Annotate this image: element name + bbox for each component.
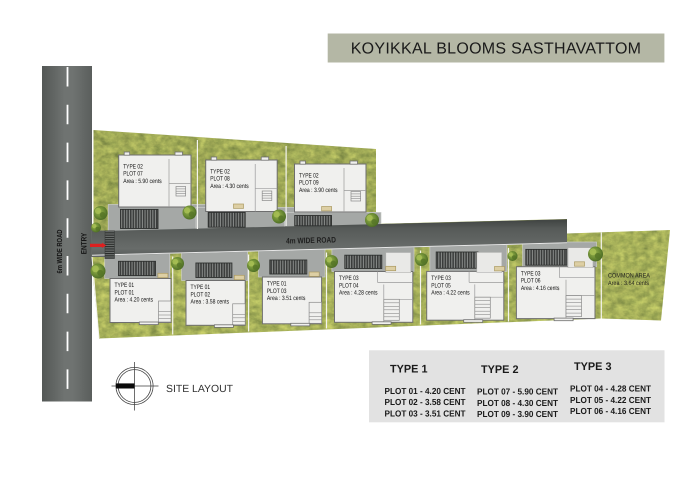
svg-text:Area : 3.51 cents: Area : 3.51 cents — [267, 295, 306, 302]
svg-text:PLOT 03: PLOT 03 — [267, 288, 287, 295]
svg-text:Area : 3.58 cents: Area : 3.58 cents — [191, 299, 230, 306]
svg-text:PLOT 08 - 4.30 CENT: PLOT 08 - 4.30 CENT — [477, 398, 559, 408]
svg-text:PLOT 06: PLOT 06 — [521, 278, 541, 285]
svg-text:TYPE 02: TYPE 02 — [123, 164, 143, 171]
svg-text:TYPE 1: TYPE 1 — [390, 364, 428, 376]
svg-text:PLOT 02 - 3.58 CENT: PLOT 02 - 3.58 CENT — [385, 397, 467, 407]
svg-text:PLOT 09 - 3.90 CENT: PLOT 09 - 3.90 CENT — [477, 409, 559, 419]
svg-text:PLOT 09: PLOT 09 — [299, 180, 319, 187]
svg-text:PLOT 05: PLOT 05 — [431, 282, 451, 289]
svg-text:TYPE 3: TYPE 3 — [574, 361, 612, 373]
svg-text:Area : 4.16 cents: Area : 4.16 cents — [521, 285, 560, 292]
svg-text:PLOT 01 - 4.20 CENT: PLOT 01 - 4.20 CENT — [385, 386, 467, 396]
svg-text:PLOT 01: PLOT 01 — [115, 289, 135, 296]
svg-text:PLOT 02: PLOT 02 — [191, 291, 211, 298]
svg-text:Area : 5.90 cents: Area : 5.90 cents — [123, 178, 162, 185]
svg-text:Area : 3.64 cents: Area : 3.64 cents — [608, 280, 649, 287]
svg-text:TYPE 01: TYPE 01 — [191, 284, 211, 291]
svg-text:Area : 4.28 cents: Area : 4.28 cents — [339, 290, 378, 297]
svg-text:TYPE 01: TYPE 01 — [267, 281, 287, 288]
svg-text:TYPE 02: TYPE 02 — [210, 169, 230, 176]
svg-text:PLOT 06 - 4.16 CENT: PLOT 06 - 4.16 CENT — [570, 406, 652, 416]
svg-text:TYPE 03: TYPE 03 — [339, 275, 359, 282]
svg-text:TYPE 01: TYPE 01 — [115, 282, 135, 289]
svg-text:6m WIDE ROAD: 6m WIDE ROAD — [55, 229, 64, 274]
svg-text:ENTRY: ENTRY — [80, 232, 89, 254]
svg-text:TYPE 03: TYPE 03 — [431, 275, 451, 282]
svg-text:Area : 4.30 cents: Area : 4.30 cents — [210, 183, 249, 190]
svg-text:PLOT 08: PLOT 08 — [210, 176, 230, 183]
svg-text:Area : 3.90 cents: Area : 3.90 cents — [299, 187, 338, 194]
svg-text:PLOT 07 - 5.90 CENT: PLOT 07 - 5.90 CENT — [477, 387, 559, 397]
svg-text:TYPE 03: TYPE 03 — [521, 270, 541, 277]
svg-text:PLOT 07: PLOT 07 — [123, 171, 143, 178]
svg-text:SITE LAYOUT: SITE LAYOUT — [166, 384, 234, 395]
svg-text:COMMON AREA: COMMON AREA — [608, 273, 651, 280]
svg-text:PLOT 05 - 4.22 CENT: PLOT 05 - 4.22 CENT — [570, 395, 652, 405]
svg-text:TYPE 02: TYPE 02 — [299, 173, 319, 180]
svg-text:Area : 4.22 cents: Area : 4.22 cents — [431, 290, 470, 297]
svg-text:TYPE 2: TYPE 2 — [481, 364, 519, 376]
svg-text:KOYIKKAL BLOOMS SASTHAVATTOM: KOYIKKAL BLOOMS SASTHAVATTOM — [351, 41, 642, 58]
svg-text:PLOT 04 - 4.28 CENT: PLOT 04 - 4.28 CENT — [570, 384, 652, 394]
svg-text:Area : 4.20 cents: Area : 4.20 cents — [115, 297, 154, 304]
svg-text:4m WIDE ROAD: 4m WIDE ROAD — [286, 235, 336, 245]
svg-text:PLOT 03 - 3.51 CENT: PLOT 03 - 3.51 CENT — [385, 409, 467, 419]
svg-text:PLOT 04: PLOT 04 — [339, 282, 359, 289]
